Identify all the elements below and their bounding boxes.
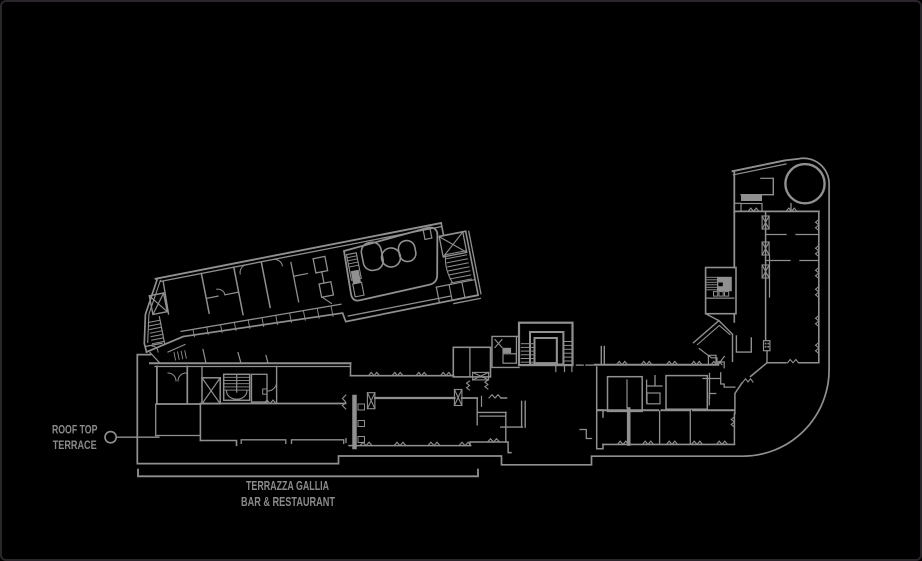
svg-text:BAR & RESTAURANT: BAR & RESTAURANT: [241, 494, 335, 509]
svg-text:ROOF TOP: ROOF TOP: [52, 425, 98, 437]
svg-text:TERRACE: TERRACE: [53, 440, 97, 452]
svg-text:TERRAZZA GALLIA: TERRAZZA GALLIA: [246, 478, 329, 493]
